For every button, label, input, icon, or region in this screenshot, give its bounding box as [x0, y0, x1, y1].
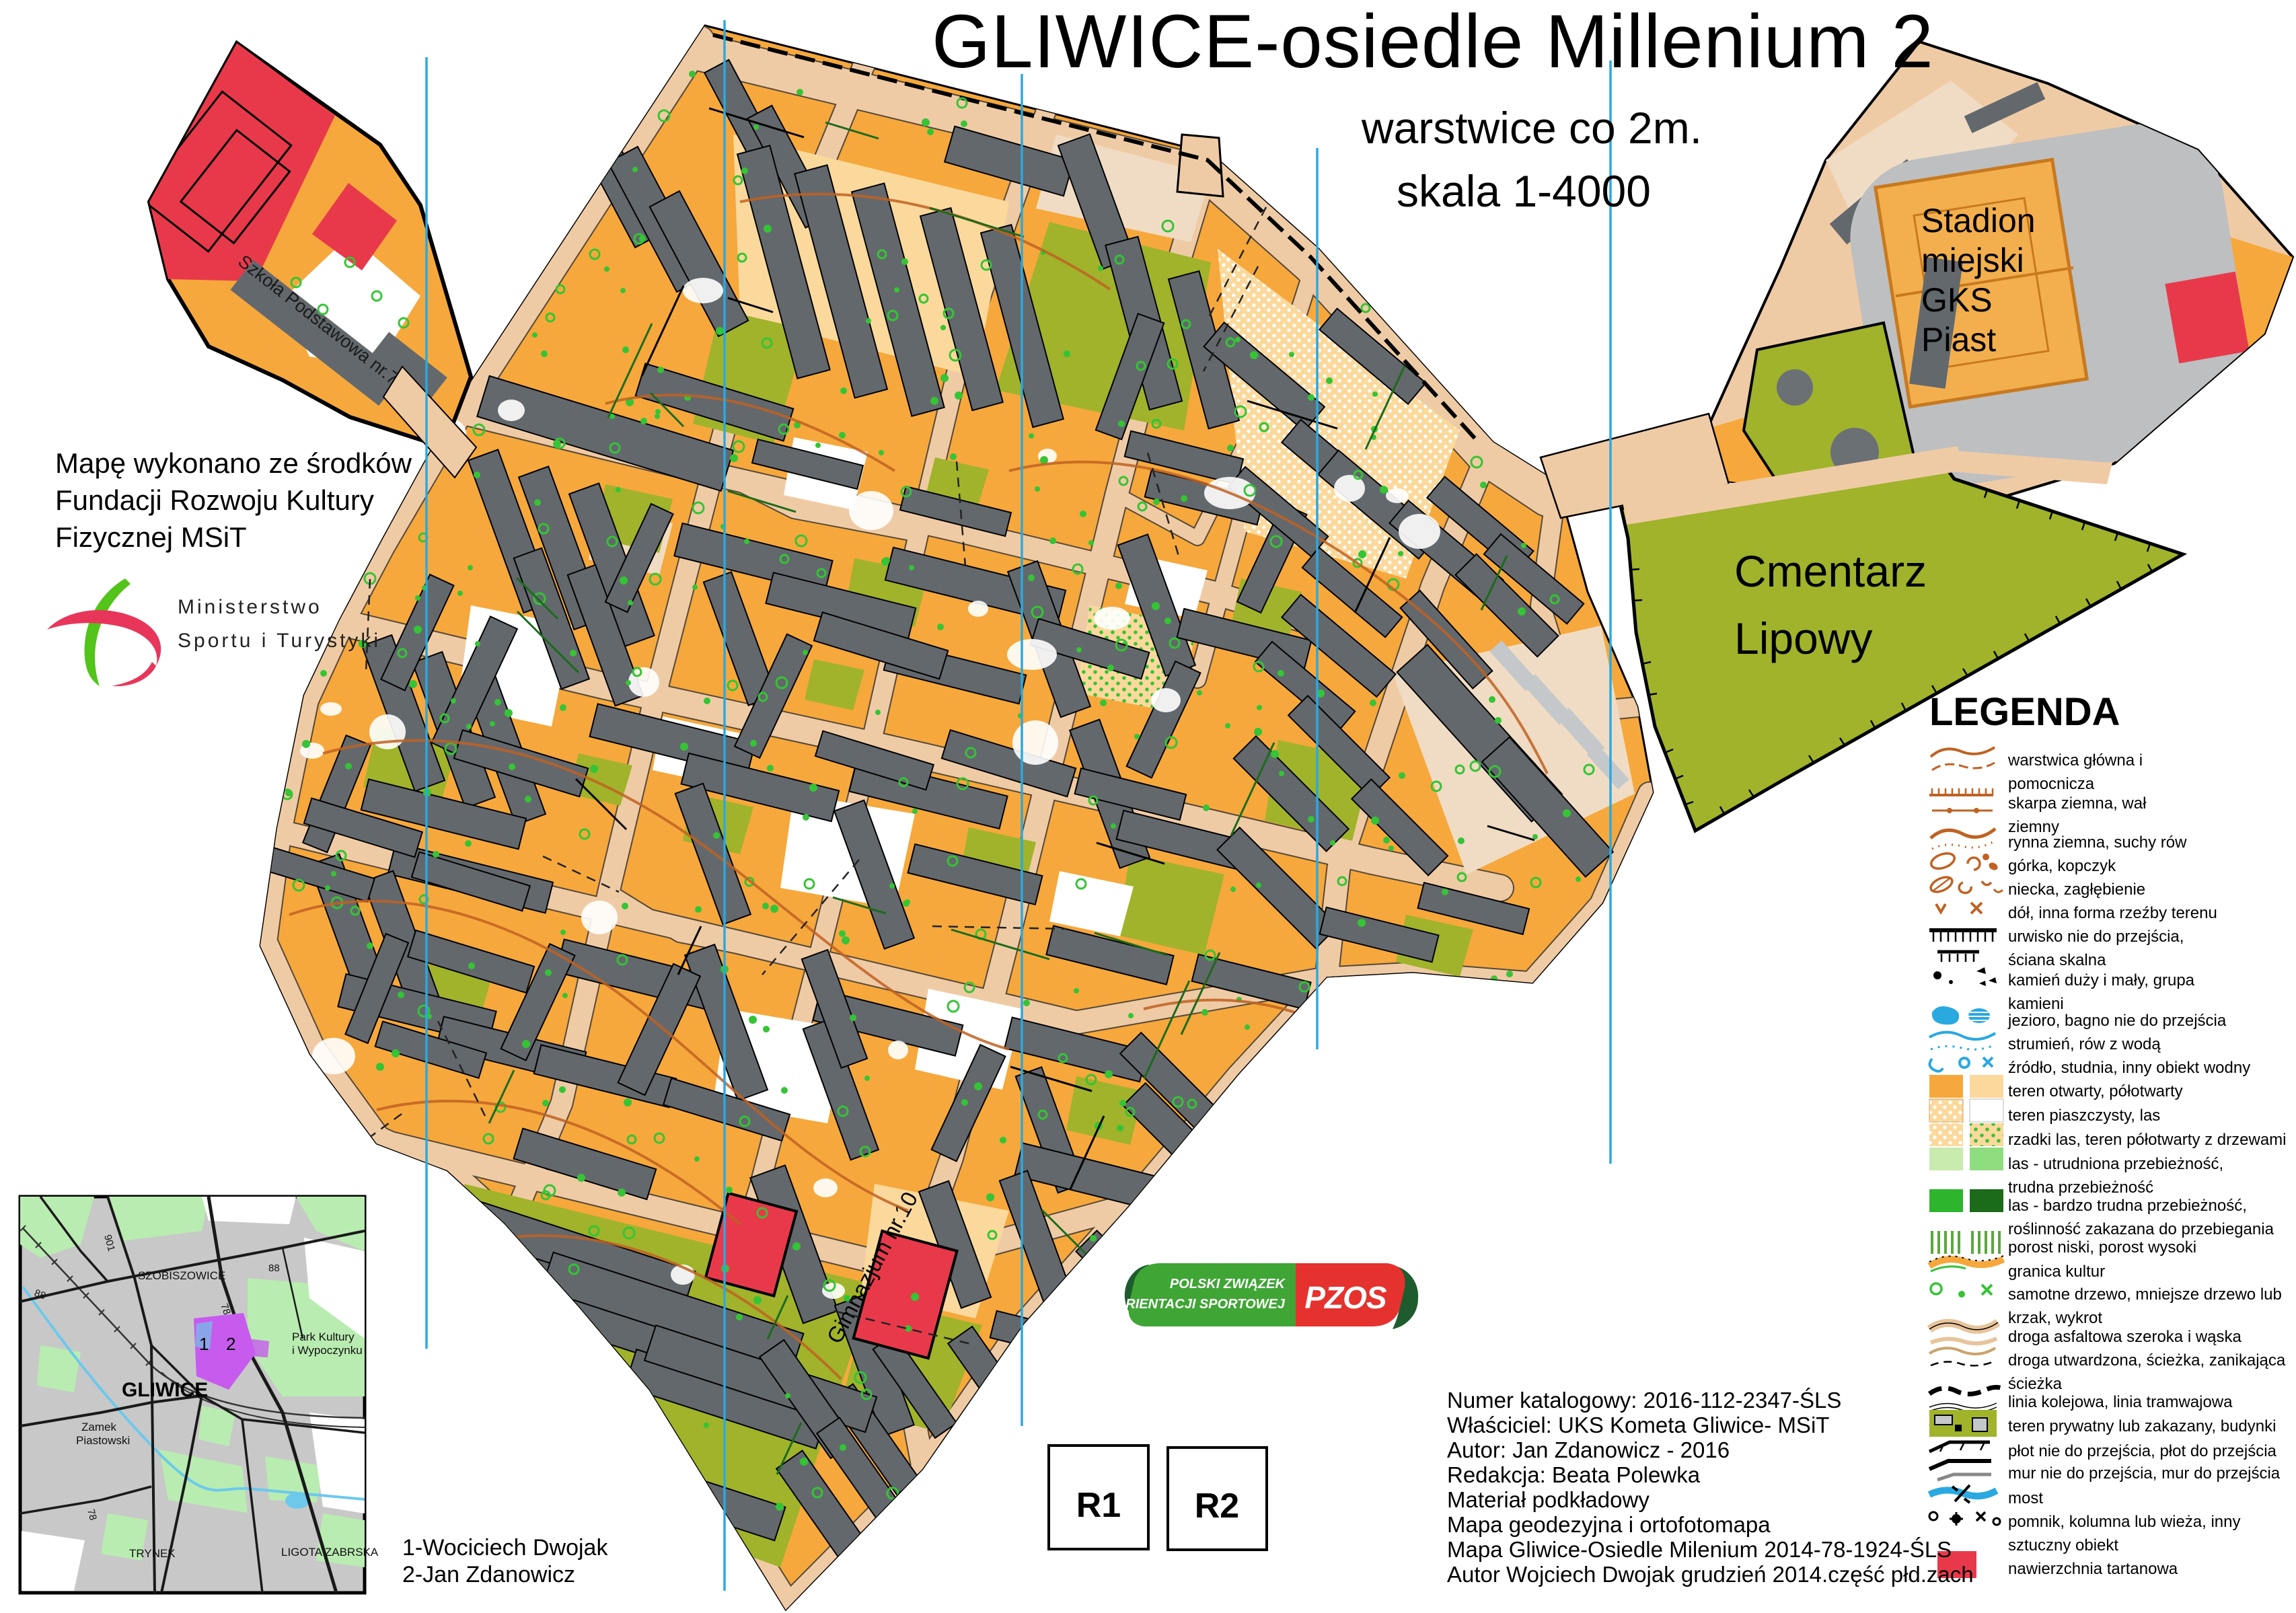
svg-text:rynna ziemna, suchy rów: rynna ziemna, suchy rów	[2008, 833, 2187, 852]
svg-text:skala 1-4000: skala 1-4000	[1397, 166, 1651, 216]
svg-text:Sportu i Turystyki: Sportu i Turystyki	[178, 630, 381, 652]
svg-text:droga utwardzona, ścieżka, zan: droga utwardzona, ścieżka, zanikająca	[2008, 1351, 2286, 1370]
svg-text:miejski: miejski	[1921, 241, 2024, 279]
svg-text:Mapa Gliwice-Osiedle Milenium: Mapa Gliwice-Osiedle Milenium 2014-78-19…	[1447, 1536, 1952, 1562]
svg-text:GLIWICE: GLIWICE	[122, 1379, 208, 1401]
svg-text:Piastowski: Piastowski	[76, 1434, 130, 1447]
svg-text:skarpa ziemna, wał: skarpa ziemna, wał	[2008, 794, 2147, 813]
svg-text:Autor: Jan Zdanowicz - 2016: Autor: Jan Zdanowicz - 2016	[1447, 1437, 1730, 1462]
svg-text:Właściciel: UKS Kometa Gliwice: Właściciel: UKS Kometa Gliwice- MSiT	[1447, 1413, 1829, 1437]
svg-text:strumień, rów z wodą: strumień, rów z wodą	[2008, 1035, 2161, 1053]
svg-text:Mapę wykonano ze środków: Mapę wykonano ze środków	[55, 447, 412, 479]
svg-text:Zamek: Zamek	[81, 1421, 116, 1433]
svg-text:las - bardzo trudna przebieżno: las - bardzo trudna przebieżność,	[2008, 1197, 2247, 1215]
svg-text:linia kolejowa, linia tramwajo: linia kolejowa, linia tramwajowa	[2008, 1393, 2233, 1411]
svg-text:88: 88	[268, 1263, 280, 1274]
svg-text:pomocnicza: pomocnicza	[2008, 775, 2095, 793]
svg-text:Redakcja: Beata Polewka: Redakcja: Beata Polewka	[1447, 1462, 1701, 1487]
svg-text:płot nie do przejścia, płot do: płot nie do przejścia, płot do przejścia	[2008, 1442, 2277, 1460]
svg-text:Ministerstwo: Ministerstwo	[178, 596, 322, 618]
svg-text:porost niski, porost wysoki: porost niski, porost wysoki	[2008, 1238, 2196, 1256]
svg-text:teren piaszczysty, las: teren piaszczysty, las	[2008, 1106, 2160, 1125]
svg-text:nawierzchnia tartanowa: nawierzchnia tartanowa	[2008, 1560, 2178, 1578]
svg-text:1-Wociciech Dwojak: 1-Wociciech Dwojak	[402, 1535, 608, 1561]
svg-text:Piast: Piast	[1921, 321, 1996, 359]
svg-text:źródło, studnia, inny obiekt w: źródło, studnia, inny obiekt wodny	[2008, 1059, 2250, 1077]
svg-text:krzak, wykrot: krzak, wykrot	[2008, 1309, 2102, 1327]
svg-text:niecka, zagłębienie: niecka, zagłębienie	[2008, 880, 2145, 899]
svg-text:Stadion: Stadion	[1921, 202, 2036, 239]
svg-text:GLIWICE-osiedle Millenium 2: GLIWICE-osiedle Millenium 2	[932, 0, 1934, 83]
svg-text:las - utrudniona przebieżność,: las - utrudniona przebieżność,	[2008, 1155, 2223, 1173]
svg-text:teren prywatny lub zakazany, b: teren prywatny lub zakazany, budynki	[2008, 1417, 2276, 1435]
svg-text:kamień duży i mały, grupa: kamień duży i mały, grupa	[2008, 971, 2195, 989]
svg-text:dół, inna forma rzeźby terenu: dół, inna forma rzeźby terenu	[2008, 904, 2217, 922]
svg-text:SZOBISZOWICE: SZOBISZOWICE	[138, 1269, 225, 1282]
svg-text:i Wypoczynku: i Wypoczynku	[292, 1344, 363, 1357]
svg-text:TRYNEK: TRYNEK	[129, 1547, 176, 1560]
svg-text:ścieżka: ścieżka	[2008, 1375, 2063, 1393]
svg-text:R1: R1	[1076, 1486, 1121, 1525]
svg-text:ściana skalna: ściana skalna	[2008, 951, 2106, 969]
svg-text:rzadki las, teren półotwarty z: rzadki las, teren półotwarty z drzewami	[2008, 1131, 2286, 1149]
svg-text:POLSKI ZWIĄZEK: POLSKI ZWIĄZEK	[1170, 1277, 1286, 1291]
svg-text:sztuczny obiekt: sztuczny obiekt	[2008, 1536, 2118, 1554]
svg-text:Cmentarz: Cmentarz	[1734, 546, 1927, 596]
svg-text:LIGOTA ZABRSKA: LIGOTA ZABRSKA	[281, 1546, 379, 1559]
svg-text:Fizycznej MSiT: Fizycznej MSiT	[55, 521, 247, 553]
svg-text:most: most	[2008, 1489, 2043, 1507]
svg-text:LEGENDA: LEGENDA	[1929, 690, 2120, 734]
svg-text:górka, kopczyk: górka, kopczyk	[2008, 857, 2116, 875]
svg-text:jezioro, bagno nie do przejści: jezioro, bagno nie do przejścia	[2007, 1012, 2227, 1030]
svg-text:Fundacji Rozwoju Kultury: Fundacji Rozwoju Kultury	[55, 484, 374, 516]
svg-text:Lipowy: Lipowy	[1734, 613, 1872, 663]
svg-text:warstwice co 2m.: warstwice co 2m.	[1361, 103, 1702, 153]
svg-text:ORIENTACJI SPORTOWEJ: ORIENTACJI SPORTOWEJ	[1115, 1297, 1286, 1312]
svg-text:2: 2	[226, 1334, 235, 1354]
svg-text:droga asfaltowa szeroka i wąsk: droga asfaltowa szeroka i wąska	[2008, 1328, 2242, 1346]
svg-text:GKS: GKS	[1921, 281, 1993, 319]
svg-text:granica kultur: granica kultur	[2008, 1263, 2105, 1281]
svg-text:Park Kultury: Park Kultury	[292, 1330, 355, 1343]
svg-text:R2: R2	[1195, 1487, 1239, 1526]
svg-text:PZOS: PZOS	[1304, 1280, 1387, 1315]
svg-text:urwisko nie do przejścia,: urwisko nie do przejścia,	[2008, 928, 2184, 946]
svg-text:Materiał podkładowy: Materiał podkładowy	[1447, 1487, 1650, 1512]
svg-text:roślinność zakazana do przebie: roślinność zakazana do przebiegania	[2008, 1220, 2274, 1238]
svg-text:kamieni: kamieni	[2008, 995, 2064, 1013]
svg-text:Autor Wojciech Dwojak grudzie: Autor Wojciech Dwojak grudzień 2014.częś…	[1447, 1562, 1974, 1587]
svg-text:mur nie do przejścia, mur do p: mur nie do przejścia, mur do przejścia	[2008, 1464, 2281, 1483]
svg-text:Numer katalogowy: 2016-112-23: Numer katalogowy: 2016-112-2347-ŚLS	[1447, 1387, 1841, 1413]
svg-text:warstwica główna i: warstwica główna i	[2007, 751, 2143, 770]
svg-text:2-Jan Zdanowicz: 2-Jan Zdanowicz	[402, 1562, 575, 1587]
svg-text:pomnik, kolumna lub wieża, inn: pomnik, kolumna lub wieża, inny	[2008, 1513, 2241, 1531]
svg-text:Mapa geodezyjna i ortofotomapa: Mapa geodezyjna i ortofotomapa	[1447, 1512, 1771, 1537]
svg-text:trudna przebieżność: trudna przebieżność	[2008, 1178, 2153, 1197]
svg-text:teren otwarty, półotwarty: teren otwarty, półotwarty	[2008, 1082, 2183, 1100]
svg-text:samotne drzewo, mniejsze drzew: samotne drzewo, mniejsze drzewo lub	[2008, 1285, 2282, 1304]
svg-text:1: 1	[199, 1334, 209, 1354]
